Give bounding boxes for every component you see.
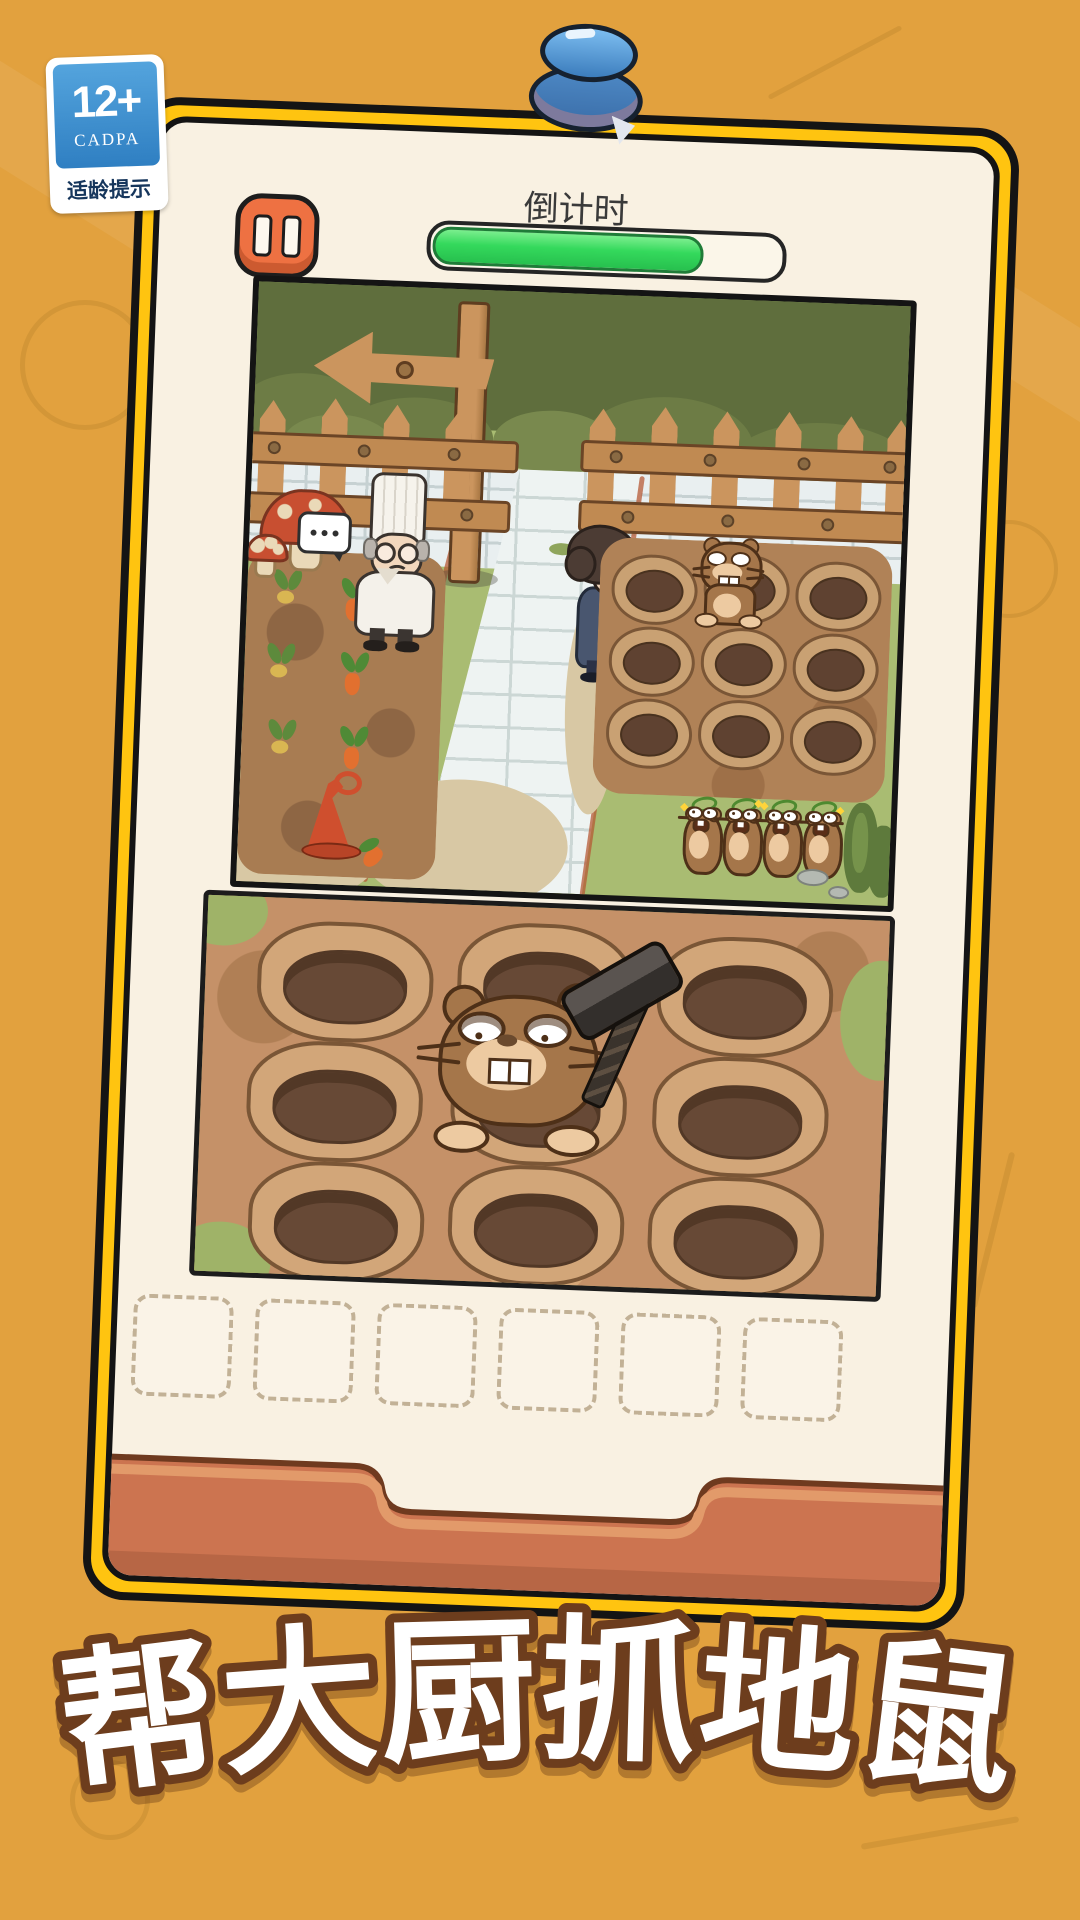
inventory-slot[interactable] <box>618 1312 722 1418</box>
inventory-slot[interactable] <box>374 1303 478 1409</box>
whack-a-mole-closeup <box>189 890 895 1302</box>
inventory-slot[interactable] <box>252 1298 356 1404</box>
inventory-slot-row <box>130 1293 939 1428</box>
title-char: 大 <box>215 1611 383 1795</box>
pushpin-icon <box>524 18 652 146</box>
captured-moles-row <box>681 796 842 876</box>
age-rating-org: CADPA <box>74 129 141 151</box>
stone <box>796 868 829 886</box>
age-rating-badge: 12+ CADPA 适龄提示 <box>45 54 168 214</box>
age-rating-caption: 适龄提示 <box>49 172 168 206</box>
age-rating-value: 12+ <box>71 79 141 125</box>
inventory-slot[interactable] <box>130 1293 234 1399</box>
hammer-tool[interactable] <box>552 946 698 1121</box>
gnome-hat <box>301 767 360 855</box>
garden-scene <box>230 275 917 912</box>
background-doodle <box>768 25 903 100</box>
title-char: 帮 <box>52 1624 228 1816</box>
title-char: 地 <box>694 1611 862 1795</box>
dizzy-mole[interactable] <box>761 799 802 874</box>
chef-character <box>343 471 444 652</box>
dizzy-mole[interactable] <box>801 801 842 876</box>
inventory-slot[interactable] <box>496 1307 600 1413</box>
title-char: 抓 <box>538 1605 699 1783</box>
inventory-slot[interactable] <box>740 1317 844 1423</box>
title-char: 鼠 <box>849 1624 1025 1816</box>
game-card-panel: 倒计时 <box>101 115 1001 1612</box>
game-card: 倒计时 <box>81 96 1020 1633</box>
progress-fill <box>432 226 704 274</box>
age-rating-panel: 12+ CADPA <box>53 61 161 169</box>
dizzy-mole[interactable] <box>721 798 762 873</box>
popped-mole[interactable] <box>696 536 761 626</box>
game-title: 帮 大 厨 抓 地 鼠 <box>50 1560 1030 1860</box>
dizzy-mole[interactable] <box>681 796 722 871</box>
page: { "background": { "color": "#e2a13e", "d… <box>0 0 1080 1920</box>
speech-bubble-ellipsis <box>297 511 353 555</box>
title-char: 厨 <box>378 1605 539 1783</box>
